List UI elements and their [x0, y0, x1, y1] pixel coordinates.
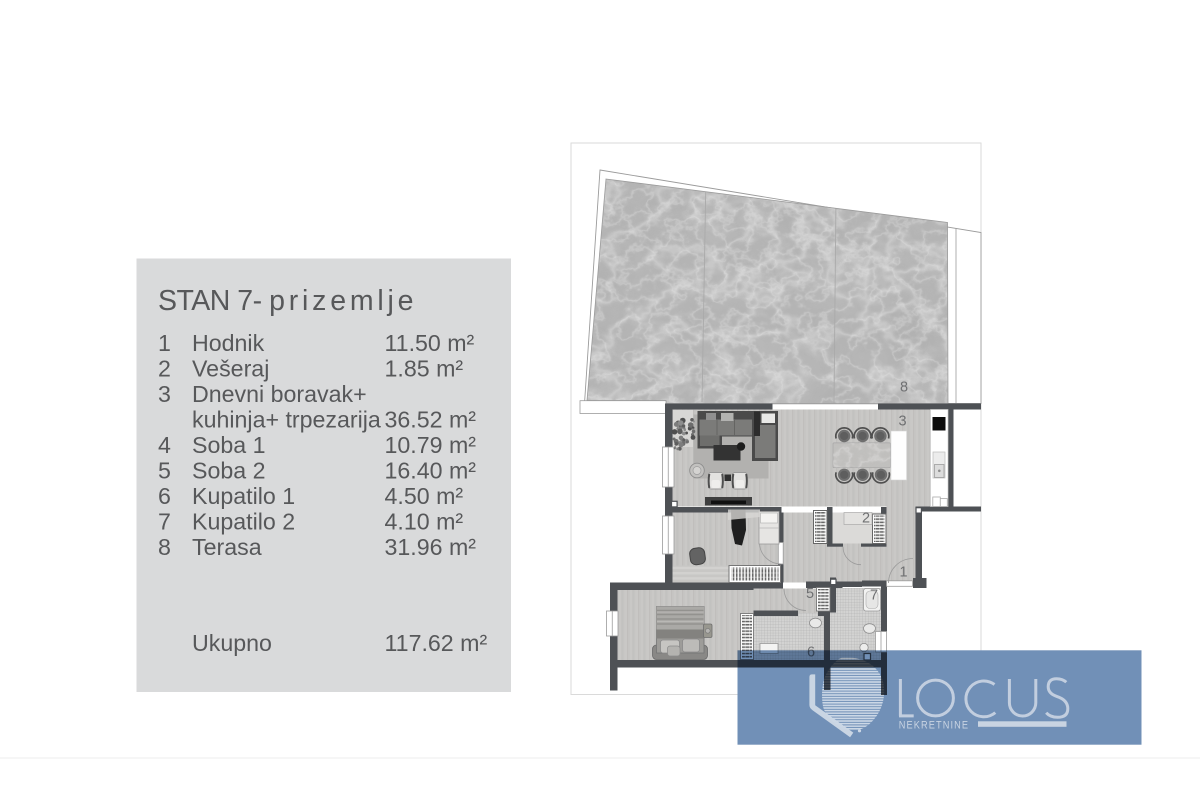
svg-text:NEKRETNINE: NEKRETNINE	[899, 720, 970, 732]
